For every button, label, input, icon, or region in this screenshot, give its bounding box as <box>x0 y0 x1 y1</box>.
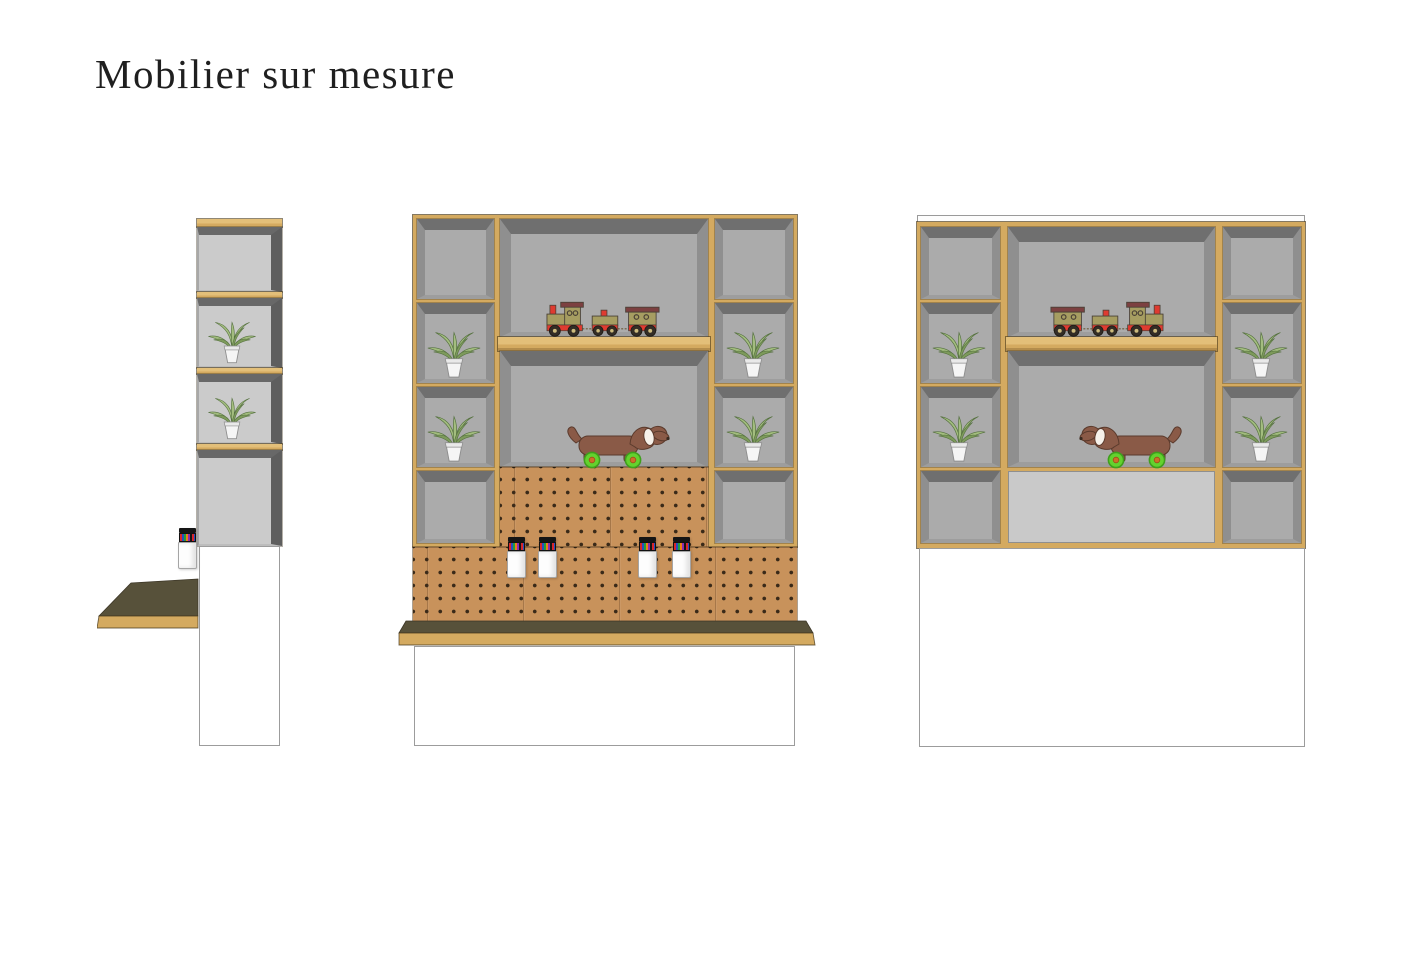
shelf-cell-empty <box>197 227 282 292</box>
counter-top <box>397 620 816 647</box>
marker-tips <box>179 533 196 542</box>
pegboard-center <box>500 467 708 547</box>
shelf-cell-empty <box>921 471 1000 543</box>
page-title: Mobilier sur mesure <box>95 50 456 98</box>
toy-train <box>545 300 663 338</box>
shelf-cell-empty <box>1223 471 1301 543</box>
marker-jar <box>538 537 557 578</box>
marker-jar <box>638 537 657 578</box>
potted-plant <box>1230 405 1292 465</box>
marker-jar <box>507 537 526 578</box>
potted-plant <box>1230 321 1292 381</box>
marker-jar <box>178 528 197 569</box>
base-cabinet <box>199 546 280 746</box>
shelf-cell-empty <box>715 471 793 543</box>
potted-plant <box>423 321 485 381</box>
toy-dog-on-wheels <box>1077 421 1189 469</box>
potted-plant <box>722 405 784 465</box>
potted-plant <box>204 312 260 366</box>
shelf-cell-empty <box>417 219 494 299</box>
shelf-top-cap <box>197 219 282 227</box>
potted-plant <box>928 321 990 381</box>
potted-plant <box>722 321 784 381</box>
pegboard-backsplash <box>413 547 797 621</box>
wood-shelf <box>498 337 710 351</box>
marker-jar <box>672 537 691 578</box>
potted-plant <box>204 388 260 442</box>
shelf-cell-empty <box>1223 227 1301 299</box>
potted-plant <box>423 405 485 465</box>
back-panel <box>1008 471 1215 543</box>
jar-body <box>178 542 197 569</box>
shelf-cell-empty <box>417 471 494 543</box>
view-front-elevation <box>413 215 815 750</box>
shelf-cell-empty <box>921 227 1000 299</box>
wood-shelf <box>1006 337 1217 351</box>
toy-dog-on-wheels <box>560 421 672 469</box>
design-sheet: Mobilier sur mesure <box>0 0 1405 967</box>
shelf-cell-empty <box>715 219 793 299</box>
base-cabinet <box>414 646 795 746</box>
view-back-elevation <box>917 215 1307 750</box>
shelf-cell-empty <box>197 450 282 546</box>
view-side-elevation <box>97 215 333 755</box>
desk-top <box>97 576 199 634</box>
toy-train <box>1047 300 1165 338</box>
potted-plant <box>928 405 990 465</box>
base-cabinet <box>919 548 1305 747</box>
